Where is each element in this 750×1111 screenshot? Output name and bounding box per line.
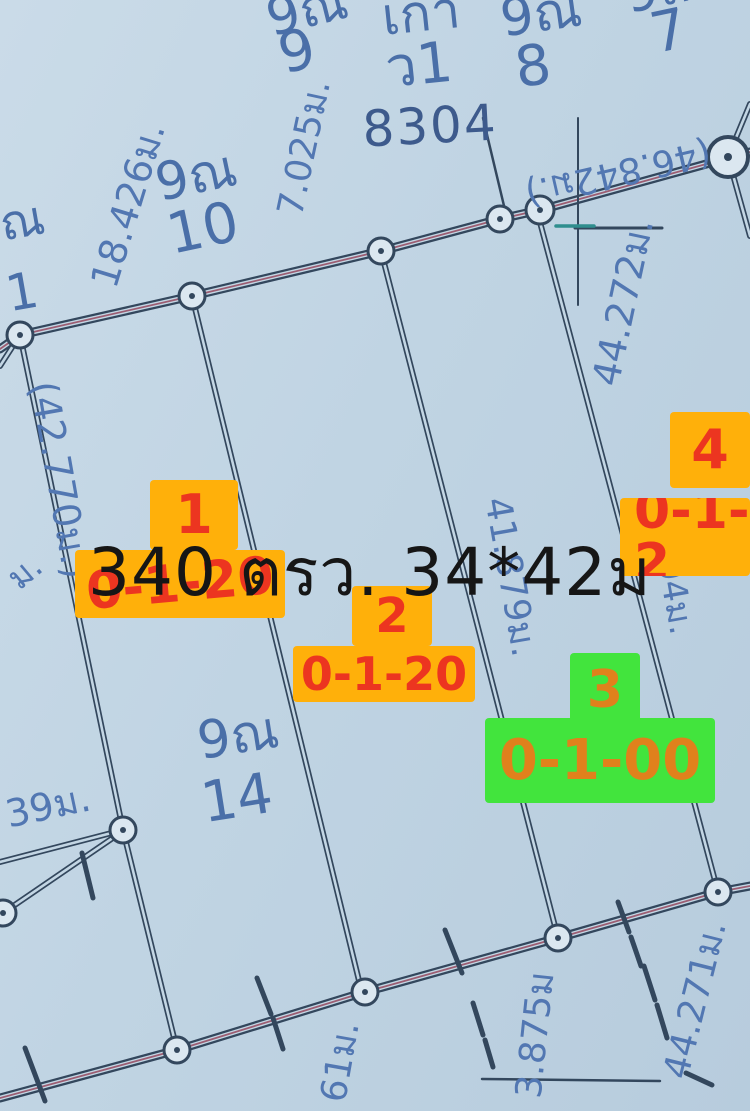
plot-3-area-code: 0-1-00 xyxy=(499,733,701,789)
plot-2-area-highlight: 0-1-20 xyxy=(293,646,475,702)
survey-number: 8304 xyxy=(361,97,499,154)
parcel-id-number: 14 xyxy=(197,766,276,832)
plot-4-number-highlight: 4 xyxy=(670,412,750,488)
parcel-id-number: 10 xyxy=(162,194,243,264)
parcel-id-number: ว1 xyxy=(383,35,456,98)
parcel-id-number: 8 xyxy=(511,37,554,97)
parcel-id-prefix: 9ณ xyxy=(194,704,282,768)
plot-3-area-highlight: 0-1-00 xyxy=(485,718,715,803)
land-plot-map: 9ณ 9 เกา ว1 9ณ 8 9ณ 7 9ณ 10 ณ 1 9ณ 14 83… xyxy=(0,0,750,1111)
area-overlay-text: 340 ตรว. 34*42ม xyxy=(88,520,652,625)
plot-2-area-code: 0-1-20 xyxy=(301,651,467,697)
parcel-id-prefix: ณ xyxy=(0,193,48,248)
plot-3-number: 3 xyxy=(587,664,623,716)
plot-3-number-highlight: 3 xyxy=(570,653,640,727)
plot-4-number: 4 xyxy=(691,423,729,477)
